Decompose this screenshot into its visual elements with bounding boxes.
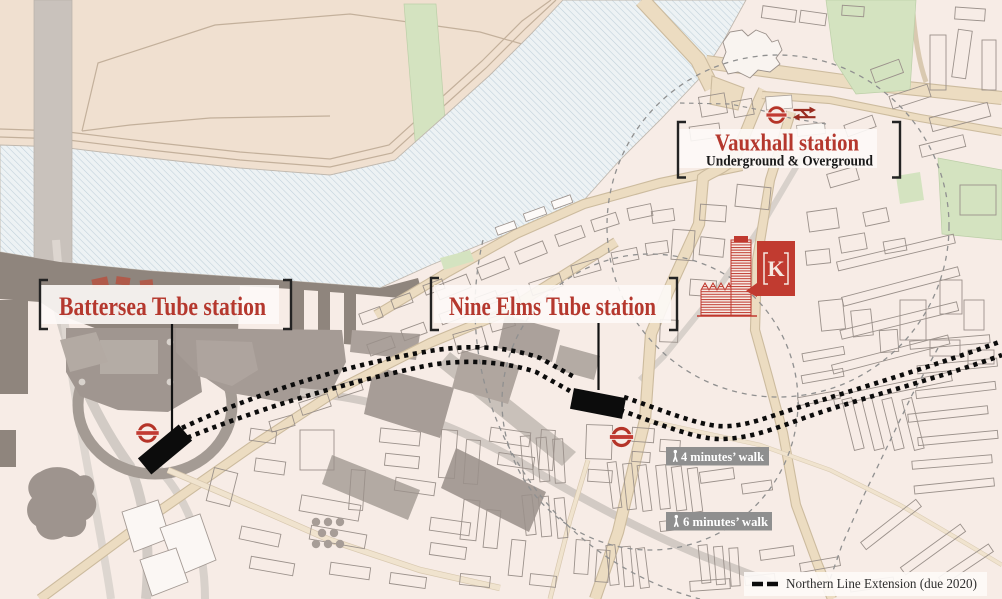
svg-text:Northern Line Extension (due 2: Northern Line Extension (due 2020) — [786, 577, 977, 592]
svg-text:4 minutes’ walk: 4 minutes’ walk — [681, 450, 764, 464]
svg-text:6 minutes’ walk: 6 minutes’ walk — [683, 515, 768, 529]
svg-text:K: K — [767, 256, 784, 281]
svg-text:Battersea Tube station: Battersea Tube station — [59, 292, 266, 321]
svg-text:Underground & Overground: Underground & Overground — [706, 154, 874, 170]
svg-text:Nine Elms Tube station: Nine Elms Tube station — [449, 292, 656, 321]
